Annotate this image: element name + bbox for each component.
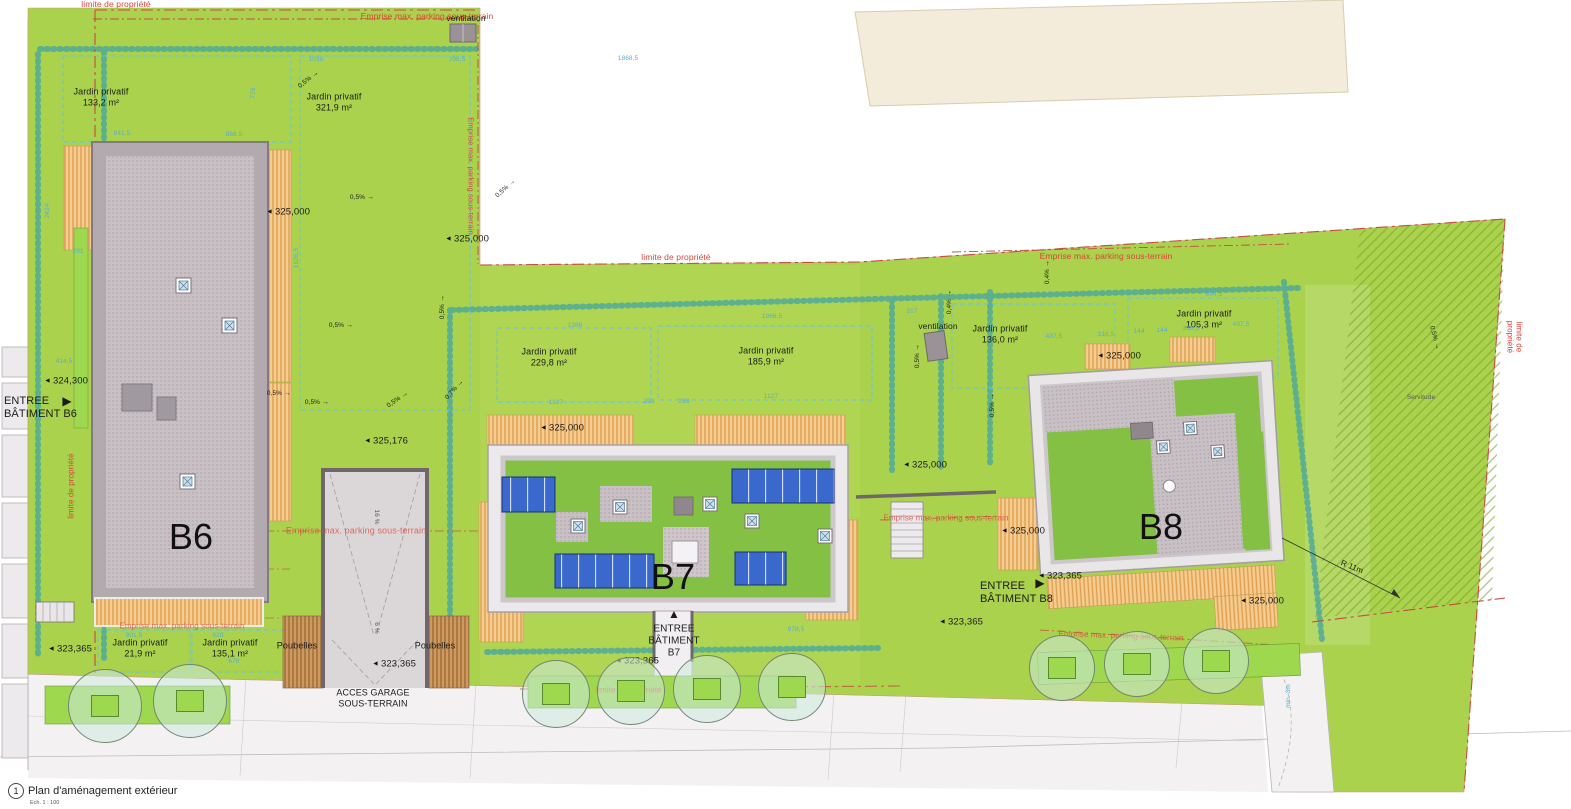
dim-1127-12: 1127 — [549, 399, 563, 407]
drawing-number: 1 — [8, 783, 24, 799]
tree-9 — [1183, 628, 1249, 694]
slope-0-5-11: 0,5% — [914, 344, 922, 368]
elevation-325-000-2: 325,000 — [445, 233, 489, 244]
dim-437-5-18: 437,5 — [1046, 333, 1063, 341]
dim-868-5-4: 868,5 — [226, 131, 243, 139]
label-jardin-185: Jardin privatif 185,9 m² — [738, 345, 793, 366]
elevation-323-365-13: 323,365 — [1038, 570, 1082, 581]
tree-7 — [1029, 635, 1095, 701]
slope-0-5-0: 0,5% — [297, 69, 321, 90]
dim-291-7: 291 — [72, 248, 83, 256]
label-jardin-133: Jardin privatif 133,2 m² — [73, 86, 128, 107]
label-emprise-b6: Emprise max. parking sous-terrain — [286, 526, 426, 537]
label-jardin-21: Jardin privatif 21,9 m² — [112, 637, 167, 658]
dim-1127-15: 1127 — [764, 393, 778, 401]
dim-1626-5-9: 1626,5 — [293, 248, 301, 268]
tree-8 — [1104, 631, 1170, 697]
label-limite-mid: limite de propriété — [641, 252, 710, 262]
tree-pit — [1048, 657, 1076, 679]
label-servitude: Servitude — [1407, 394, 1435, 402]
site-plan: limite de propriétéEmprise max. parking … — [0, 0, 1571, 809]
elevation-324-300-0: 324,300 — [44, 375, 88, 386]
label-building-b7: B7 — [651, 556, 695, 598]
slope-0-5-2: 0,5% — [329, 322, 353, 330]
tree-pit — [542, 683, 570, 705]
dim-398-5-2: 398,5 — [449, 56, 466, 64]
label-poubelles-1: Poubelles — [277, 641, 317, 652]
dim-414-5-8: 414,5 — [56, 358, 73, 366]
label-jardin-136: Jardin privatif 136,0 m² — [972, 323, 1027, 344]
dim-841-5-3: 841,5 — [114, 130, 131, 138]
tree-1 — [68, 669, 142, 743]
dim-678-27: 678 — [228, 658, 239, 666]
dim-1868-5-1: 1868,5 — [618, 55, 638, 63]
elevation-323-365-10: 323,365 — [372, 658, 416, 669]
label-emprise-b8-top: Emprise max. parking sous-terrain — [1040, 251, 1173, 261]
dim-144-21: 144 — [1156, 327, 1167, 335]
slope-0-5-13: 0,5% — [1427, 325, 1441, 351]
drawing-title: Plan d'aménagement extérieur — [28, 785, 177, 797]
label-poubelles-2: Poubelles — [415, 641, 455, 652]
elevation-325-000-8: 325,000 — [1240, 595, 1284, 606]
label-building-b8: B8 — [1139, 506, 1183, 548]
label-limite-left: limite de propriété — [66, 453, 75, 519]
dim-776-5: 776 — [250, 87, 258, 98]
elevation-325-000-1: 325,000 — [266, 206, 310, 217]
dim-316-5-19: 316,5 — [1098, 331, 1115, 339]
slope-0-5-12: 0,5% — [989, 393, 997, 417]
elevation-323-365-9: 323,365 — [48, 643, 92, 654]
slope-0-5-1: 0,5% — [350, 194, 374, 202]
tree-6 — [758, 653, 826, 721]
tree-5 — [673, 655, 741, 723]
label-building-b6: B6 — [169, 516, 213, 558]
label-limite-top: limite de propriété — [81, 0, 150, 9]
elevation-325-000-7: 325,000 — [1001, 525, 1045, 536]
label-entree-b6-arrow: ▶ — [62, 394, 71, 408]
dim-894-5-17: 894,5 — [1206, 291, 1223, 299]
slope-0-4-9: 0,4% — [1044, 260, 1052, 284]
dim-min-3m-28: min. 3m — [1285, 684, 1293, 708]
label-emprise-bottom-left: Emprise max. parking sous-terrain — [119, 621, 244, 630]
elevation-325-176-3: 325,176 — [364, 435, 408, 446]
tree-pit — [176, 690, 204, 712]
label-radius-11m: R 11m — [1339, 558, 1364, 576]
label-slope-16pct: 16 % — [372, 509, 380, 524]
tree-pit — [778, 676, 806, 698]
label-jardin-229: Jardin privatif 229,8 m² — [521, 346, 576, 367]
label-jardin-135: Jardin privatif 135,1 m² — [202, 637, 257, 658]
label-ventilation-2: ventilation — [918, 321, 957, 331]
tree-pit — [617, 680, 645, 702]
label-jardin-321: Jardin privatif 321,9 m² — [306, 91, 361, 112]
label-limite-right: limite de propriété — [1505, 309, 1524, 366]
tree-2 — [153, 664, 227, 738]
tree-3 — [522, 660, 590, 728]
tree-pit — [1123, 653, 1151, 675]
elevation-325-000-6: 325,000 — [1097, 350, 1141, 361]
label-entree-b7-arrow: ▲ — [668, 607, 680, 621]
dim-1038-0: 1038 — [309, 56, 324, 64]
slope-0-5-7: 0,5% — [439, 295, 447, 319]
dim-144-20: 144 — [1133, 328, 1144, 336]
dim-288-14: 288 — [678, 398, 689, 406]
slope-0-5-4: 0,5% — [305, 399, 329, 407]
label-emprise-right-b6: Emprise max. parking sous-terrain — [466, 117, 475, 235]
dim-2424-6: 2424 — [44, 204, 52, 219]
label-acces-garage: ACCES GARAGE SOUS-TERRAIN — [336, 687, 409, 708]
tree-pit — [693, 678, 721, 700]
elevation-323-365-12: 323,365 — [939, 616, 983, 627]
dim-628-26: 628 — [212, 632, 223, 640]
title-block: 1Plan d'aménagement extérieur Ech. 1 : 1… — [8, 782, 177, 806]
dim-293-13: 293 — [643, 398, 654, 406]
label-entree-b7: ENTREE BÂTIMENT B7 — [648, 623, 699, 658]
dim-901-5-25: 901,5 — [126, 632, 143, 640]
dim-1966-5-11: 1966,5 — [762, 313, 782, 321]
dim-437-5-23: 437,5 — [1233, 321, 1250, 329]
tree-pit — [1202, 650, 1230, 672]
elevation-325-000-5: 325,000 — [903, 459, 947, 470]
drawing-scale: Ech. 1 : 100 — [30, 800, 177, 806]
elevation-325-000-4: 325,000 — [540, 422, 584, 433]
label-ventilation-1: ventilation — [446, 13, 485, 23]
dim-978-5-24: 978,5 — [788, 626, 805, 634]
slope-0-7-8: 0,7% — [444, 378, 466, 402]
slope-0-5-6: 0,5% — [494, 178, 518, 200]
dim-318-5-22: 318,5 — [1183, 325, 1200, 333]
slope-0-5-5: 0,5% — [386, 390, 411, 411]
annotation-layer: limite de propriétéEmprise max. parking … — [0, 0, 1571, 809]
dim-317-16: 317 — [906, 308, 917, 316]
label-emprise-b7-b8: Emprise max. parking sous-terrain — [883, 513, 1008, 522]
label-slope-6pct: 6 % — [372, 622, 380, 634]
tree-4 — [597, 657, 665, 725]
slope-0-4-10: 0,4% — [946, 290, 954, 314]
tree-pit — [91, 695, 119, 717]
dim-1386-10: 1386 — [568, 322, 583, 330]
slope-0-5-3: 0,5% — [267, 390, 291, 398]
